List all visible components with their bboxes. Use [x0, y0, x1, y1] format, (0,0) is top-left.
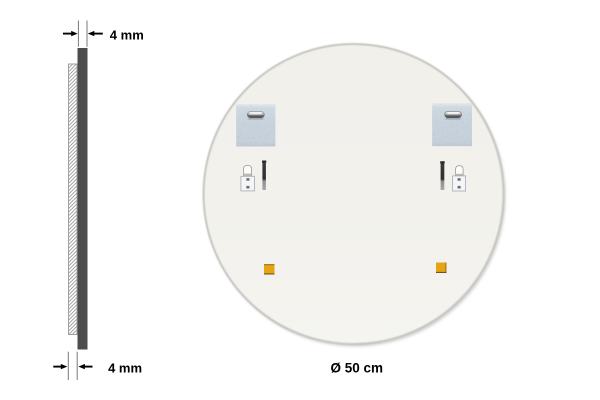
svg-text:Ø 50 cm: Ø 50 cm: [331, 361, 384, 376]
svg-text:4 mm: 4 mm: [110, 27, 144, 42]
svg-text:4 mm: 4 mm: [108, 361, 142, 376]
